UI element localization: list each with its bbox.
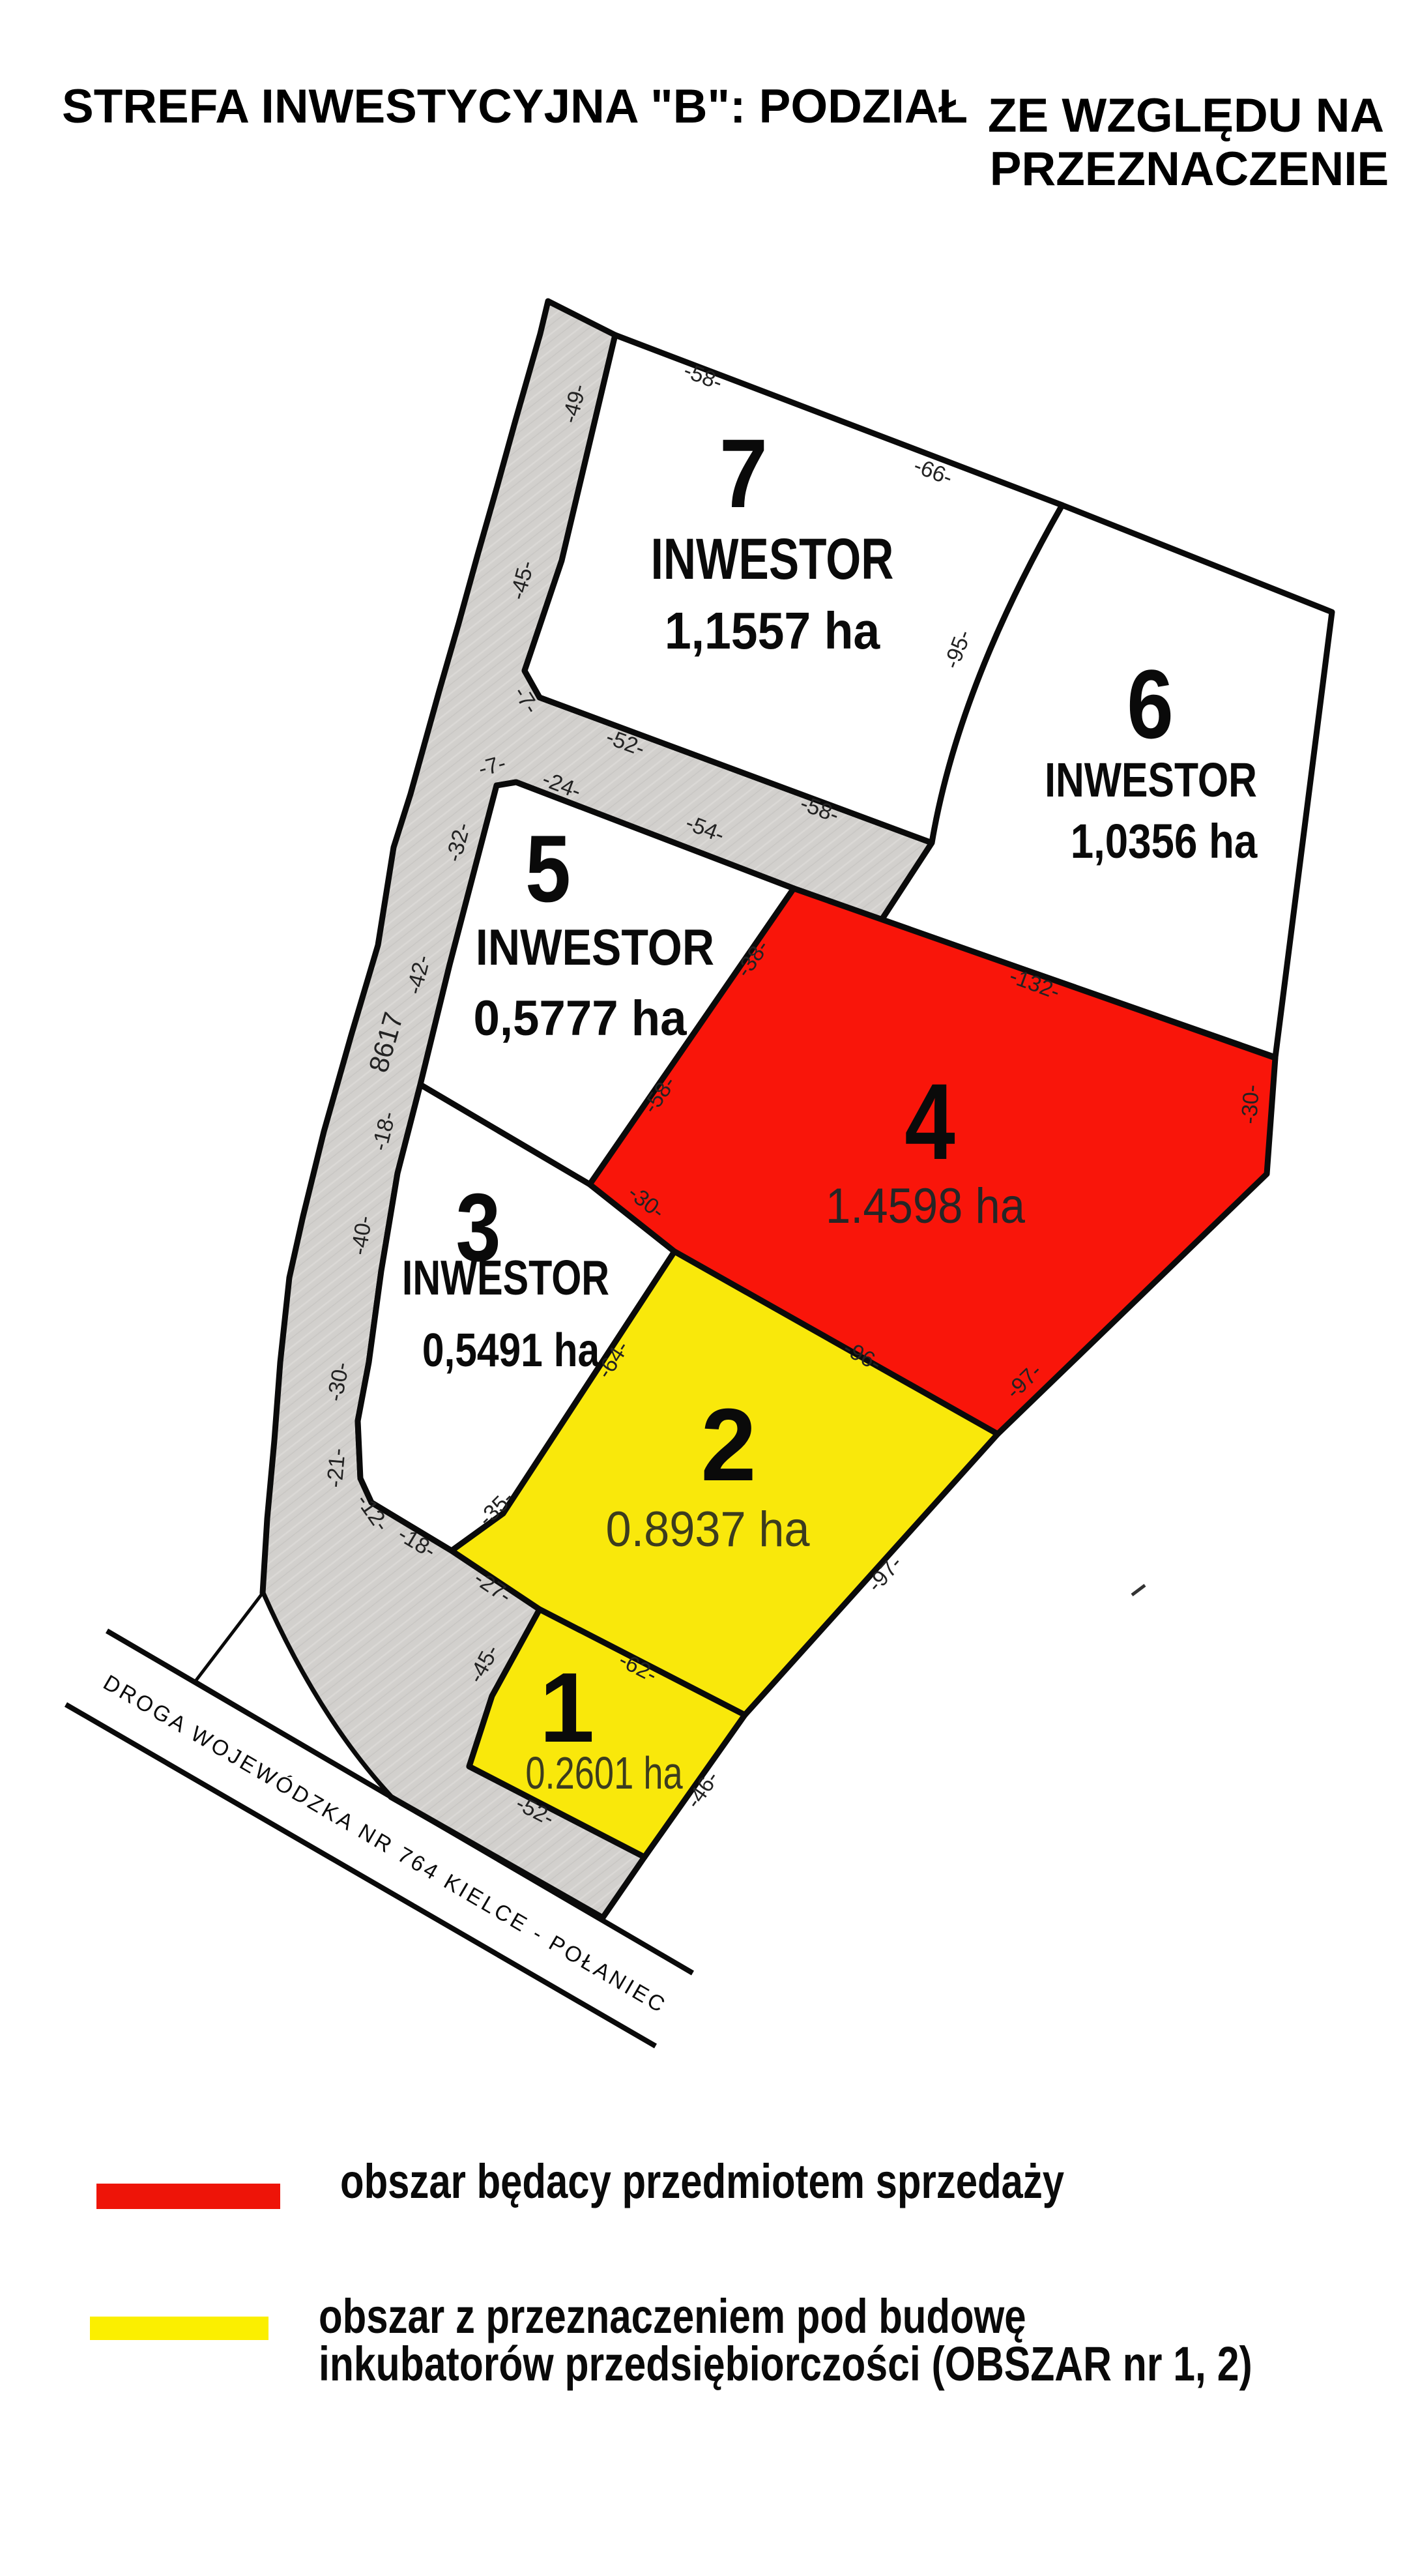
svg-text:-21-: -21- <box>322 1447 350 1489</box>
svg-text:5: 5 <box>525 815 571 922</box>
svg-text:1: 1 <box>540 1652 595 1763</box>
svg-text:obszar z przeznaczeniem pod bu: obszar z przeznaczeniem pod budowę <box>319 2290 1026 2343</box>
svg-text:INWESTOR: INWESTOR <box>651 527 894 591</box>
svg-text:1.4598 ha: 1.4598 ha <box>826 1178 1026 1234</box>
svg-text:0,5491 ha: 0,5491 ha <box>422 1325 600 1377</box>
svg-text:INWESTOR: INWESTOR <box>476 919 714 976</box>
svg-text:ZE WZGLĘDU NA: ZE WZGLĘDU NA <box>988 89 1384 142</box>
svg-text:INWESTOR: INWESTOR <box>402 1251 609 1305</box>
svg-text:6: 6 <box>1127 649 1174 759</box>
svg-text:7: 7 <box>719 419 768 529</box>
svg-text:0.8937 ha: 0.8937 ha <box>605 1502 809 1557</box>
svg-text:INWESTOR: INWESTOR <box>1045 754 1257 807</box>
svg-text:-30-: -30- <box>1237 1084 1264 1125</box>
svg-text:STREFA INWESTYCYJNA "B": PODZI: STREFA INWESTYCYJNA "B": PODZIAŁ <box>62 80 968 133</box>
svg-text:1,1557 ha: 1,1557 ha <box>665 602 881 660</box>
svg-text:1,0356 ha: 1,0356 ha <box>1071 815 1258 869</box>
svg-text:4: 4 <box>904 1062 955 1182</box>
svg-text:2: 2 <box>701 1387 756 1502</box>
svg-text:obszar będacy przedmiotem sprz: obszar będacy przedmiotem sprzedaży <box>340 2155 1065 2208</box>
svg-text:0,5777 ha: 0,5777 ha <box>473 991 687 1046</box>
svg-text:0.2601 ha: 0.2601 ha <box>525 1748 682 1798</box>
svg-text:inkubatorów przedsiębiorczości: inkubatorów przedsiębiorczości (OBSZAR n… <box>319 2337 1252 2391</box>
svg-text:PRZEZNACZENIE: PRZEZNACZENIE <box>990 143 1389 196</box>
